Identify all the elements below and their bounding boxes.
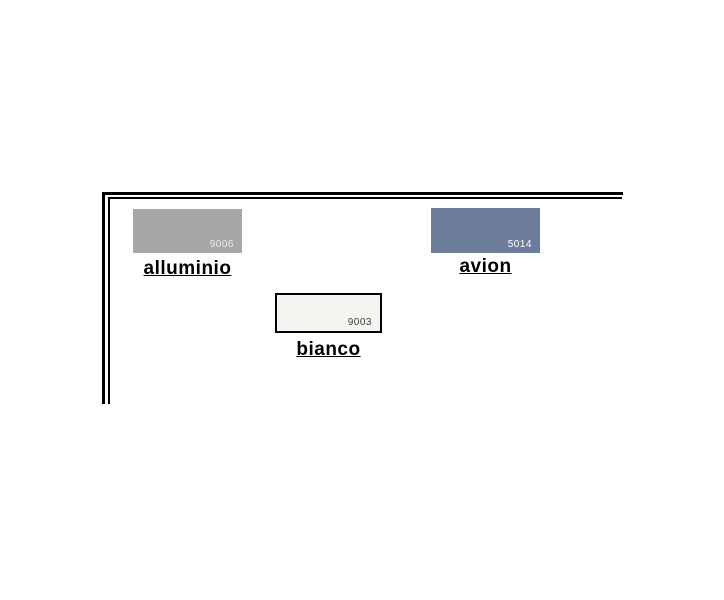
- color-swatch-bianco[interactable]: 9003: [275, 293, 382, 333]
- color-option-avion: 5014 avion: [431, 208, 540, 278]
- color-option-bianco: 9003 bianco: [275, 293, 382, 361]
- color-label-alluminio[interactable]: alluminio: [144, 258, 232, 280]
- color-swatch-avion[interactable]: 5014: [431, 208, 540, 253]
- color-code-avion: 5014: [508, 240, 532, 250]
- page-canvas: 9006 alluminio 5014 avion 9003 bianco: [0, 0, 724, 600]
- color-swatch-alluminio[interactable]: 9006: [133, 209, 242, 253]
- color-code-bianco: 9003: [348, 318, 372, 328]
- color-option-alluminio: 9006 alluminio: [133, 209, 242, 280]
- color-code-alluminio: 9006: [210, 240, 234, 250]
- color-label-avion[interactable]: avion: [459, 256, 511, 278]
- color-label-bianco[interactable]: bianco: [296, 339, 360, 361]
